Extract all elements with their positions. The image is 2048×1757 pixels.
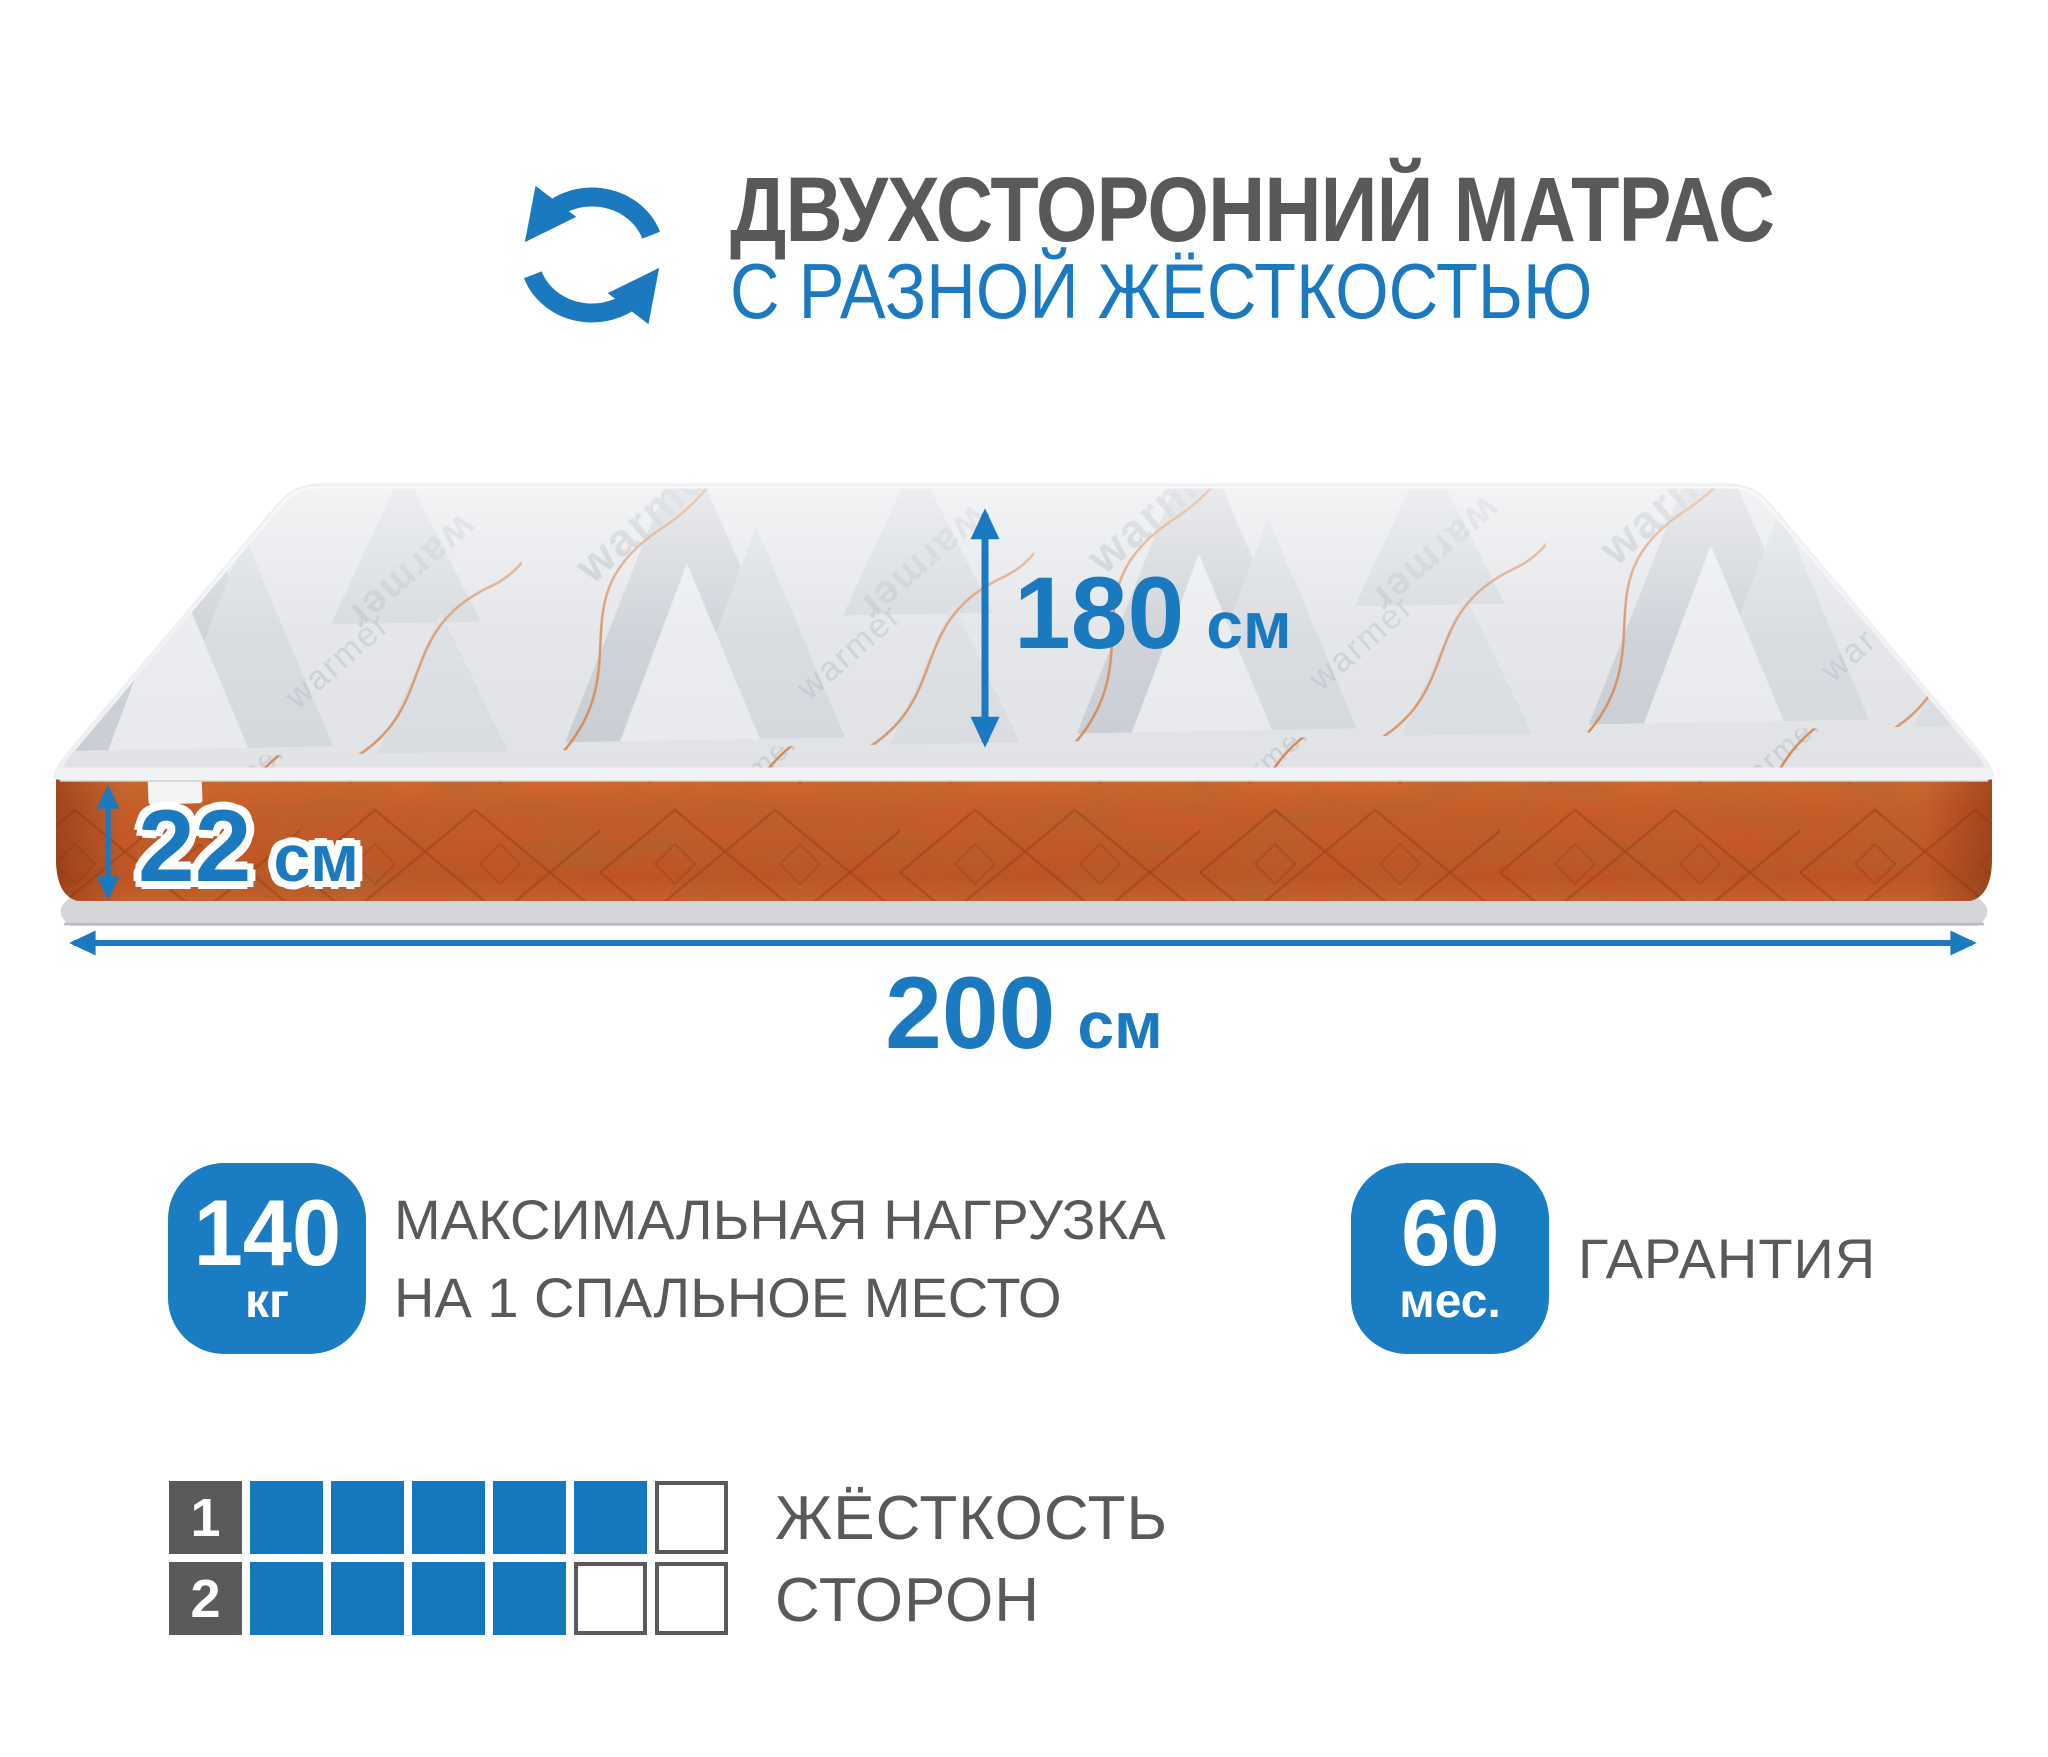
firmness-cell — [412, 1562, 485, 1635]
height-dimension-label: 22 см — [138, 795, 359, 897]
firmness-cell — [250, 1562, 323, 1635]
warranty-badge: 60 мес. — [1351, 1163, 1549, 1354]
warranty-label-text: ГАРАНТИЯ — [1578, 1220, 1876, 1298]
firmness-cell — [574, 1481, 647, 1554]
firmness-cell — [655, 1481, 728, 1554]
height-unit: см — [273, 825, 359, 891]
mattress-bottom-piping — [61, 898, 1988, 926]
firmness-label-line1: ЖЁСТКОСТЬ — [775, 1481, 1168, 1555]
firmness-cell — [574, 1562, 647, 1635]
depth-value: 180 — [1014, 562, 1184, 664]
firmness-cell — [493, 1481, 566, 1554]
max-load-label: МАКСИМАЛЬНАЯ НАГРУЗКА НА 1 СПАЛЬНОЕ МЕСТ… — [394, 1163, 1166, 1354]
firmness-side-number: 2 — [169, 1562, 242, 1635]
firmness-row: 2 — [169, 1562, 728, 1635]
firmness-cell — [412, 1481, 485, 1554]
depth-unit: см — [1206, 592, 1292, 658]
max-load-badge: 140 кг — [168, 1163, 366, 1354]
warranty-label: ГАРАНТИЯ — [1578, 1163, 1876, 1354]
firmness-cell — [493, 1562, 566, 1635]
firmness-label-line2: СТОРОН — [775, 1563, 1040, 1637]
depth-dimension-label: 180 см — [1014, 562, 1292, 664]
max-load-label-line1: МАКСИМАЛЬНАЯ НАГРУЗКА — [394, 1181, 1166, 1259]
max-load-label-line2: НА 1 СПАЛЬНОЕ МЕСТО — [394, 1259, 1166, 1337]
mattress-infographic: warmer warmer warmer warmer — [0, 0, 2048, 1757]
width-value: 200 — [885, 962, 1055, 1064]
firmness-cell — [250, 1481, 323, 1554]
height-value: 22 — [138, 795, 251, 897]
page-subtitle: С РАЗНОЙ ЖЁСТКОСТЬЮ — [730, 252, 1592, 330]
firmness-cell — [331, 1481, 404, 1554]
width-unit: см — [1077, 992, 1163, 1058]
warranty-value: 60 — [1401, 1190, 1499, 1276]
firmness-row: 1 — [169, 1481, 728, 1554]
firmness-grid-rows: 12 — [169, 1481, 728, 1635]
firmness-cell — [331, 1562, 404, 1635]
page-title: ДВУХСТОРОННИЙ МАТРАС — [730, 164, 1774, 256]
rotate-arrows-icon — [506, 177, 678, 335]
firmness-side-number: 1 — [169, 1481, 242, 1554]
width-dimension-label: 200 см — [885, 962, 1163, 1064]
firmness-cell — [655, 1562, 728, 1635]
max-load-value: 140 — [193, 1190, 340, 1276]
